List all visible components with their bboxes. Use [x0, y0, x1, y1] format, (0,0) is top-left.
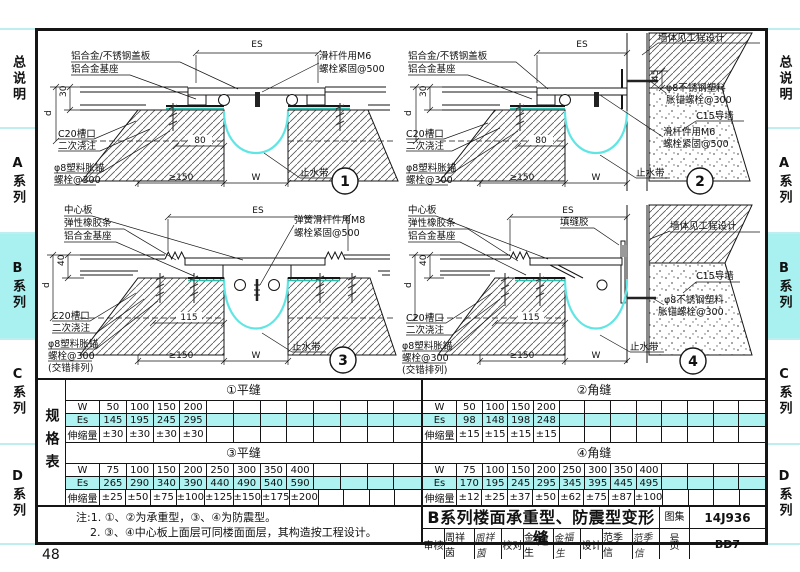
table-cell: 100: [127, 464, 154, 476]
d4-label-sealant: 填缝胶: [560, 216, 589, 228]
table-cell: [395, 490, 421, 505]
table-cell: [314, 464, 341, 476]
table-cell: 245: [154, 414, 181, 426]
d2-dim-150: ≥150: [510, 173, 535, 183]
table-cell: [688, 427, 714, 442]
d1-dim-30: 30: [59, 85, 69, 97]
table-row-w: W 50100150200: [423, 401, 765, 414]
detail-drawing-1: 铝合金/不锈钢盖板 铝合金基座 ES 滑杆件用M6 螺栓紧固@500 d 30 …: [38, 31, 400, 203]
table-cell: 345: [560, 477, 586, 489]
row-cells: 170195245295345395445495: [457, 477, 765, 489]
table-cell: ±15: [457, 427, 483, 442]
d1-dim-es: ES: [251, 40, 263, 50]
d4-waterstop-arc: [565, 279, 627, 329]
table-cell: 145: [100, 414, 127, 426]
d1-label-rod1: 滑杆件用M6: [319, 50, 371, 62]
table-cell: [341, 414, 368, 426]
table-cell: 170: [457, 477, 483, 489]
row-cells: 50100150200: [100, 401, 421, 413]
row-label: 伸缩量: [423, 427, 457, 442]
table-cell: 200: [534, 464, 560, 476]
d4-label-stagger: (交错排列): [402, 364, 447, 376]
row-label: W: [423, 401, 457, 413]
table-row-extension: 伸缩量 ±12±25±37±50±62±75±87±100: [423, 490, 765, 505]
notes-block: 注:1. ①、②为承重型，③、④为防震型。 2. ③、④中心板上面层可同楼面面层…: [38, 507, 423, 542]
row-label: 伸缩量: [423, 490, 457, 505]
table-cell: [368, 427, 395, 442]
table-cell: 495: [637, 477, 663, 489]
table-cell: ±200: [290, 490, 318, 505]
d3-dim-es: ES: [252, 206, 264, 216]
row-label: 伸缩量: [66, 427, 100, 442]
d4-label-anchor1: φ8塑料胀锚: [402, 340, 453, 352]
d3-label-spring1: 弹簧滑杆件用M8: [294, 214, 365, 226]
table-cell: [662, 401, 688, 413]
sidebar-item-label: B系列: [775, 261, 794, 311]
d4-detail-number: 4: [688, 354, 698, 370]
d1-label-anchor1: φ8塑料胀锚: [54, 162, 105, 174]
signature-text: 范季信: [633, 529, 660, 559]
d3-label-stagger: (交错排列): [48, 362, 93, 374]
table-cell: 100: [483, 464, 509, 476]
sidebar-item-label: B系列: [8, 261, 27, 311]
note-line-1: 注:1. ①、②为承重型，③、④为防震型。: [76, 510, 421, 525]
table-cell: [341, 401, 368, 413]
d2-cover-assembly: [510, 88, 627, 109]
d4-label-ss2: 胀锚螺栓@300: [658, 306, 724, 318]
d2-label-ss1: φ8不锈钢塑料: [666, 82, 726, 94]
table-cell: 395: [585, 477, 611, 489]
table-cell: [394, 427, 421, 442]
table-cell: [714, 427, 740, 442]
sidebar-left: 总说明 A系列 B系列 C系列 D系列: [0, 28, 35, 545]
d2-label-rod1: 滑杆件用M6: [663, 126, 715, 138]
table-cell: ±75: [151, 490, 177, 505]
table-cell: 245: [508, 477, 534, 489]
table-cell: [207, 401, 234, 413]
table-cell: ±62: [559, 490, 584, 505]
sidebar-item-general-notes: 总说明: [0, 28, 35, 127]
checker-label: 校对: [502, 529, 524, 559]
table-cell: ±100: [635, 490, 663, 505]
table-cell: ±15: [483, 427, 509, 442]
row-cells: ±30±30±30±30: [100, 427, 421, 442]
table-cell: 250: [207, 464, 234, 476]
table-cell: [234, 427, 261, 442]
table-cell: [368, 401, 395, 413]
table-cell: [261, 414, 288, 426]
signature-text: 周祥茵: [475, 529, 502, 559]
d4-label-base: 铝合金基座: [408, 230, 456, 242]
table-cell: [394, 414, 421, 426]
d2-label-rod2: 螺栓紧固@500: [663, 138, 729, 150]
row-cells: ±12±25±37±50±62±75±87±100: [457, 490, 765, 505]
table-cell: 98: [457, 414, 483, 426]
table-cell: [739, 401, 765, 413]
table-cell: [368, 414, 395, 426]
table-cell: 540: [261, 477, 288, 489]
d1-detail-number: 1: [340, 174, 350, 190]
bottom-section: 注:1. ①、②为承重型，③、④为防震型。 2. ③、④中心板上面层可同楼面面层…: [38, 505, 765, 542]
row-cells: 265290340390440490540590: [100, 477, 421, 489]
table-cell: [637, 414, 663, 426]
row-label: Es: [423, 414, 457, 426]
spec-table-2: ②角缝 W 50100150200 Es 98148198248 伸缩量 ±15…: [423, 380, 765, 443]
d3-label-pour: 二次浇注: [52, 322, 91, 334]
d1-label-base: 铝合金基座: [71, 63, 119, 75]
d3-label-center: 中心板: [64, 204, 93, 216]
table-cell: 295: [180, 414, 207, 426]
sidebar-item-series-d: D系列: [0, 443, 35, 545]
table-cell: 248: [534, 414, 560, 426]
table-cell: ±75: [584, 490, 609, 505]
d3-dim-115: 115: [180, 313, 197, 323]
d2-dim-w: W: [592, 173, 601, 183]
sidebar-item-label: A系列: [775, 156, 794, 206]
table-cell: 150: [508, 401, 534, 413]
d4-dim-es: ES: [562, 206, 574, 216]
table-cell: [714, 414, 740, 426]
sheet-title: B系列楼面承重型、防震型变形缝: [423, 507, 660, 528]
table-cell: 445: [611, 477, 637, 489]
reviewer-name: 周祥茵: [445, 529, 475, 559]
sidebar-right: 总说明 A系列 B系列 C系列 D系列: [768, 28, 800, 545]
d2-dim-30: 30: [419, 85, 429, 97]
table-cell: 350: [261, 464, 288, 476]
table-cell: [314, 401, 341, 413]
table-cell: [714, 477, 740, 489]
drawing-3-canvas: 中心板 弹性橡胶条 铝合金基座 ES 弹簧滑杆件用M8 螺栓紧固@500 40 …: [38, 203, 400, 378]
spec-table-1: ①平缝 W 50100150200 Es 145195245295 伸缩量 ±3…: [66, 380, 421, 443]
d4-label-waterstop: 止水带: [630, 341, 659, 353]
drawing-1-canvas: 铝合金/不锈钢盖板 铝合金基座 ES 滑杆件用M6 螺栓紧固@500 d 30 …: [38, 31, 400, 203]
table-cell: ±37: [508, 490, 533, 505]
table-cell: [585, 427, 611, 442]
sheet-page-number: BD7: [690, 529, 765, 559]
table-cell: ±30: [127, 427, 154, 442]
d4-slab-lines: [440, 255, 510, 275]
d1-dim-d: d: [44, 110, 54, 116]
table-cell: ±175: [262, 490, 290, 505]
table-cell: [368, 477, 395, 489]
title-block: B系列楼面承重型、防震型变形缝 图集号 14J936 审核 周祥茵 周祥茵 校对…: [423, 507, 765, 542]
d1-dim-150: ≥150: [169, 173, 194, 183]
row-cells: ±25±50±75±100±125±150±175±200: [100, 490, 421, 505]
page-number: 48: [42, 547, 60, 563]
reviewer-label: 审核: [423, 529, 445, 559]
spec-tables-right-group: ②角缝 W 50100150200 Es 98148198248 伸缩量 ±15…: [423, 380, 765, 505]
table-cell: 50: [457, 401, 483, 413]
table-cell: [560, 414, 586, 426]
d2-dim-45: 45: [651, 70, 661, 81]
checker-name: 金福生: [524, 529, 554, 559]
table-cell: [394, 401, 421, 413]
row-label: Es: [423, 477, 457, 489]
d4-dim-150: ≥150: [510, 351, 535, 361]
d4-label-c20: C20槽口: [406, 312, 444, 324]
table-cell: [341, 477, 368, 489]
table-cell: 75: [100, 464, 127, 476]
d2-label-base: 铝合金基座: [408, 63, 456, 75]
sidebar-item-series-d: D系列: [768, 443, 800, 545]
table-cell: [688, 477, 714, 489]
d3-label-base: 铝合金基座: [64, 230, 112, 242]
table-cell: [662, 427, 688, 442]
table-cell: [637, 401, 663, 413]
d2-label-cover: 铝合金/不锈钢盖板: [408, 50, 488, 62]
table-cell: ±100: [177, 490, 205, 505]
d2-label-c15: C15导墙: [696, 110, 734, 122]
table-cell: ±25: [482, 490, 507, 505]
table-cell: 200: [534, 401, 560, 413]
table-cell: 150: [154, 464, 181, 476]
detail-drawing-2: 铝合金/不锈钢盖板 铝合金基座 ES 墙体见工程设计 45 φ8不锈钢塑料 胀锚…: [400, 31, 765, 203]
table-cell: [207, 414, 234, 426]
d2-label-anchor2: 螺栓@300: [406, 174, 453, 186]
table-cell: 200: [180, 401, 207, 413]
d1-label-rod2: 螺栓紧固@500: [319, 63, 385, 75]
table-cell: 50: [100, 401, 127, 413]
sidebar-item-label: 总说明: [8, 55, 27, 103]
table-cell: [688, 401, 714, 413]
table-cell: ±30: [180, 427, 207, 442]
sidebar-item-series-c: C系列: [768, 338, 800, 443]
table-cell: [560, 427, 586, 442]
atlas-number-value: 14J936: [690, 507, 765, 528]
d3-label-anchor2: 螺栓@300: [48, 350, 95, 362]
drawing-2-canvas: 铝合金/不锈钢盖板 铝合金基座 ES 墙体见工程设计 45 φ8不锈钢塑料 胀锚…: [400, 31, 765, 203]
table-cell: ±87: [609, 490, 634, 505]
table-row-w: W 75100150200250300350400: [66, 464, 421, 477]
sidebar-item-label: 总说明: [775, 55, 794, 103]
table-title: ③平缝: [66, 443, 421, 464]
sidebar-item-label: A系列: [8, 156, 27, 206]
drawing-sheet-frame: 铝合金/不锈钢盖板 铝合金基座 ES 滑杆件用M6 螺栓紧固@500 d 30 …: [35, 28, 768, 545]
table-cell: 400: [287, 464, 314, 476]
row-label: 伸缩量: [66, 490, 100, 505]
table-cell: 440: [207, 477, 234, 489]
d1-dim-w: W: [252, 173, 261, 183]
table-cell: ±125: [205, 490, 233, 505]
d1-label-pour: 二次浇注: [58, 140, 97, 152]
table-cell: 265: [100, 477, 127, 489]
row-cells: 145195245295: [100, 414, 421, 426]
d2-detail-number: 2: [695, 174, 705, 190]
table-cell: [261, 401, 288, 413]
d4-label-pour: 二次浇注: [406, 324, 445, 336]
table-cell: [637, 427, 663, 442]
d4-dim-d: d: [404, 282, 414, 288]
d4-joint-sealant: [620, 245, 627, 257]
spec-table-3: ③平缝 W 75100150200250300350400 Es 2652903…: [66, 443, 421, 505]
note-line-2: 2. ③、④中心板上面层可同楼面面层，其构造按工程设计。: [76, 525, 421, 540]
table-cell: [739, 464, 765, 476]
d3-dim-150: ≥150: [169, 351, 194, 361]
table-cell: ±25: [100, 490, 126, 505]
table-cell: [714, 401, 740, 413]
designer-name: 范季信: [603, 529, 633, 559]
table-cell: 300: [234, 464, 261, 476]
d3-dim-40: 40: [57, 254, 67, 266]
table-cell: [287, 401, 314, 413]
sidebar-item-series-b: B系列: [0, 232, 35, 338]
spec-table-side-label: 规格表: [38, 380, 66, 505]
table-cell: [344, 490, 370, 505]
sidebar-item-series-c: C系列: [0, 338, 35, 443]
table-cell: [611, 414, 637, 426]
table-cell: 250: [560, 464, 586, 476]
row-label: Es: [66, 414, 100, 426]
table-cell: [739, 427, 765, 442]
table-row-extension: 伸缩量 ±30±30±30±30: [66, 427, 421, 442]
sidebar-item-label: C系列: [775, 367, 794, 417]
table-cell: [740, 490, 765, 505]
d4-label-center: 中心板: [408, 204, 437, 216]
signature-text: 金福生: [554, 529, 581, 559]
sheet-page-label: 页: [660, 529, 690, 559]
table-cell: ±15: [534, 427, 560, 442]
d2-label-waterstop: 止水带: [636, 167, 665, 179]
table-cell: [314, 477, 341, 489]
table-cell: ±30: [154, 427, 181, 442]
d2-dim-es: ES: [576, 40, 588, 50]
sidebar-item-series-a: A系列: [768, 127, 800, 232]
sidebar-item-label: D系列: [8, 469, 27, 519]
spec-tables-right-stack: ②角缝 W 50100150200 Es 98148198248 伸缩量 ±15…: [423, 380, 765, 505]
table-cell: [394, 477, 421, 489]
d4-label-ss1: φ8不锈钢塑料: [664, 294, 724, 306]
d2-label-ss2: 胀锚螺栓@300: [666, 94, 732, 106]
d3-dim-d: d: [42, 282, 52, 288]
d4-dim-115: 115: [522, 313, 539, 323]
d2-label-c20: C20槽口: [406, 128, 444, 140]
table-cell: [370, 490, 396, 505]
d3-detail-number: 3: [338, 353, 348, 369]
checker-signature: 金福生: [554, 529, 581, 559]
d2-label-pour: 二次浇注: [406, 140, 445, 152]
d2-label-wall: 墙体见工程设计: [658, 32, 725, 44]
table-cell: ±15: [508, 427, 534, 442]
d4-dim-w: W: [592, 351, 601, 361]
table-title: ②角缝: [423, 380, 765, 401]
table-cell: 350: [611, 464, 637, 476]
d3-dim-w: W: [252, 351, 261, 361]
row-label: W: [66, 464, 100, 476]
table-cell: 490: [234, 477, 261, 489]
table-cell: [341, 464, 368, 476]
table-cell: 195: [127, 414, 154, 426]
spec-table-side-label-text: 规格表: [42, 408, 62, 477]
drawing-4-canvas: 中心板 弹性橡胶条 铝合金基座 ES 填缝胶 墙体见工程设计 C15导墙 φ8不…: [400, 203, 765, 378]
table-cell: [585, 414, 611, 426]
sidebar-item-series-b: B系列: [768, 232, 800, 338]
table-cell: 198: [508, 414, 534, 426]
table-row-es: Es 145195245295: [66, 414, 421, 427]
sidebar-item-general-notes: 总说明: [768, 28, 800, 127]
table-cell: [662, 464, 688, 476]
spec-tables-left-stack: ①平缝 W 50100150200 Es 145195245295 伸缩量 ±3…: [66, 380, 421, 505]
table-row-w: W 75100150200250300350400: [423, 464, 765, 477]
table-row-es: Es 98148198248: [423, 414, 765, 427]
row-label: W: [423, 464, 457, 476]
d2-dim-80: 80: [535, 136, 547, 146]
table-cell: [662, 414, 688, 426]
d4-label-c15: C15导墙: [696, 270, 734, 282]
table-cell: ±50: [126, 490, 152, 505]
table-cell: [314, 414, 341, 426]
table-cell: [739, 477, 765, 489]
table-cell: [688, 464, 714, 476]
d3-label-c20: C20槽口: [52, 310, 90, 322]
d3-label-rubber: 弹性橡胶条: [64, 217, 112, 229]
table-cell: [611, 427, 637, 442]
sidebar-item-label: C系列: [8, 367, 27, 417]
table-cell: [714, 464, 740, 476]
table-cell: 195: [483, 477, 509, 489]
table-cell: ±150: [234, 490, 262, 505]
table-cell: 148: [483, 414, 509, 426]
table-cell: 150: [154, 401, 181, 413]
sidebar-item-label: D系列: [775, 469, 794, 519]
d4-concrete-hatch: [438, 278, 565, 355]
row-cells: 75100150200250300350400: [100, 464, 421, 476]
row-cells: 50100150200: [457, 401, 765, 413]
table-cell: [585, 401, 611, 413]
detail-drawing-4: 中心板 弹性橡胶条 铝合金基座 ES 填缝胶 墙体见工程设计 C15导墙 φ8不…: [400, 203, 765, 378]
title-block-top-row: B系列楼面承重型、防震型变形缝 图集号 14J936: [423, 507, 765, 529]
atlas-number-label: 图集号: [660, 507, 690, 528]
table-cell: [394, 464, 421, 476]
row-cells: 75100150200250300350400: [457, 464, 765, 476]
table-cell: 295: [534, 477, 560, 489]
spec-table-4: ④角缝 W 75100150200250300350400 Es 1701952…: [423, 443, 765, 505]
table-cell: [714, 490, 739, 505]
spec-tables-section: 规格表 ①平缝 W 50100150200 Es 145195245295 伸缩…: [38, 378, 765, 505]
table-cell: [287, 414, 314, 426]
table-cell: [234, 414, 261, 426]
d3-label-waterstop: 止水带: [292, 341, 321, 353]
sidebar-item-series-a: A系列: [0, 127, 35, 232]
d4-label-anchor2: 螺栓@300: [402, 352, 449, 364]
d3-label-spring2: 螺栓紧固@500: [294, 227, 360, 239]
table-cell: 300: [585, 464, 611, 476]
table-cell: ±30: [100, 427, 127, 442]
table-title: ④角缝: [423, 443, 765, 464]
table-cell: 100: [483, 401, 509, 413]
table-cell: ±12: [457, 490, 482, 505]
d4-label-rubber: 弹性橡胶条: [408, 217, 456, 229]
row-cells: ±15±15±15±15: [457, 427, 765, 442]
detail-drawing-3: 中心板 弹性橡胶条 铝合金基座 ES 弹簧滑杆件用M8 螺栓紧固@500 40 …: [38, 203, 400, 378]
table-cell: [368, 464, 395, 476]
row-cells: 98148198248: [457, 414, 765, 426]
table-cell: 400: [637, 464, 663, 476]
table-cell: 100: [127, 401, 154, 413]
table-row-w: W 50100150200: [66, 401, 421, 414]
table-cell: 200: [180, 464, 207, 476]
table-cell: [560, 401, 586, 413]
spec-tables-left-group: 规格表 ①平缝 W 50100150200 Es 145195245295 伸缩…: [38, 380, 423, 505]
d1-waterstop-arc: [224, 111, 288, 153]
table-row-es: Es 265290340390440490540590: [66, 477, 421, 490]
table-cell: [287, 427, 314, 442]
d4-dim-40: 40: [419, 254, 429, 266]
table-cell: [611, 401, 637, 413]
table-cell: [207, 427, 234, 442]
table-cell: 150: [508, 464, 534, 476]
table-title: ①平缝: [66, 380, 421, 401]
reviewer-signature: 周祥茵: [475, 529, 502, 559]
